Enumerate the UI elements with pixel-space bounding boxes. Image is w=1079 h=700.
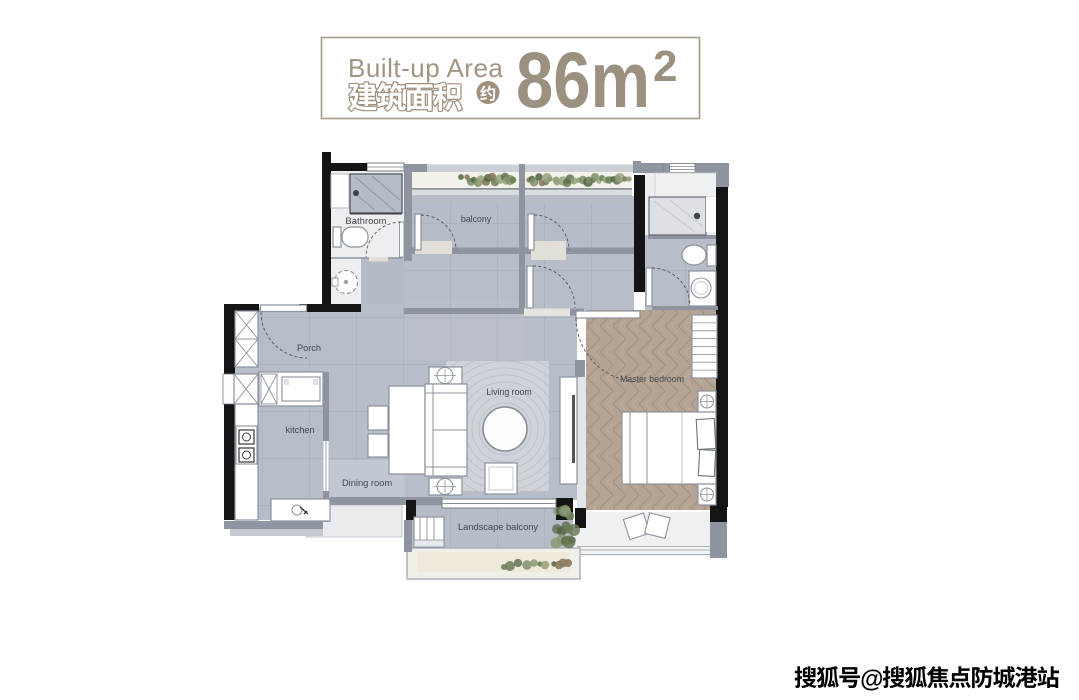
svg-text:kitchen: kitchen	[285, 425, 314, 435]
svg-text:Dining room: Dining room	[342, 478, 392, 488]
svg-text:Built-up Area: Built-up Area	[348, 53, 503, 83]
svg-text:2: 2	[653, 42, 677, 91]
svg-text:Master bedroom: Master bedroom	[620, 374, 684, 384]
svg-text:Living room: Living room	[486, 387, 531, 397]
svg-text:86m: 86m	[516, 35, 650, 124]
svg-text:Porch: Porch	[297, 343, 321, 353]
svg-text:Bathroom: Bathroom	[345, 216, 386, 227]
svg-text:@: @	[860, 666, 883, 693]
svg-text:balcony: balcony	[461, 214, 492, 224]
svg-text:Landscape balcony: Landscape balcony	[458, 522, 538, 532]
